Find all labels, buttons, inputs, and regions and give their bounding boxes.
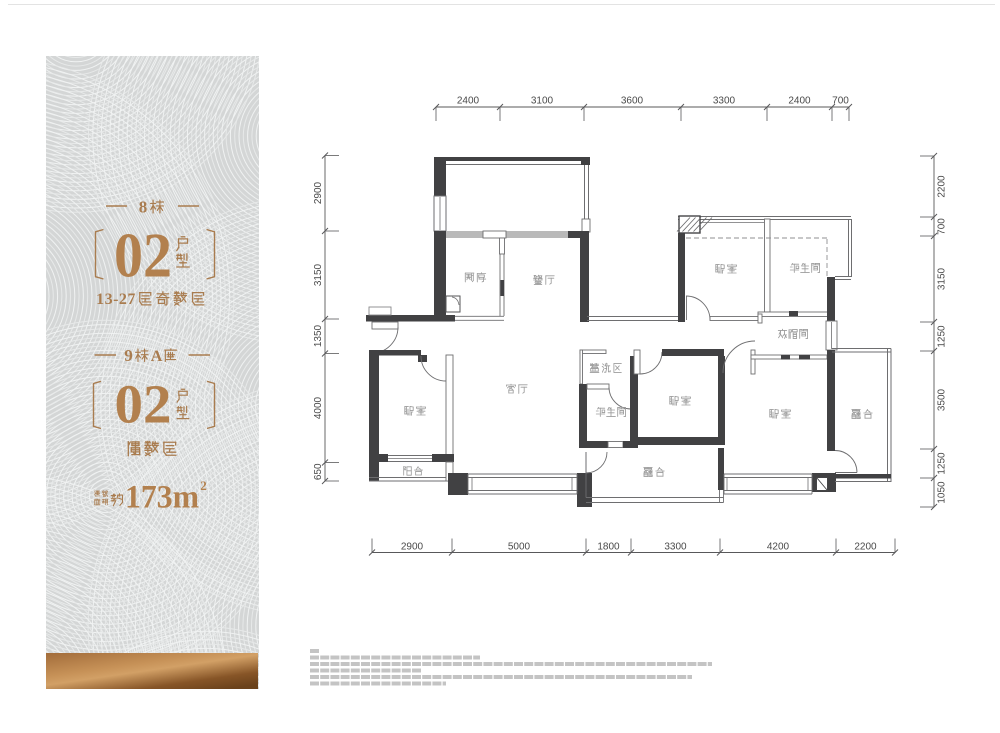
svg-text:2200: 2200 [937, 175, 948, 198]
svg-text:1800: 1800 [597, 542, 620, 553]
svg-text:02: 02 [114, 221, 172, 291]
svg-text:4000: 4000 [313, 396, 324, 419]
svg-text:5000: 5000 [508, 542, 531, 553]
svg-text:2900: 2900 [401, 542, 424, 553]
svg-text:3500: 3500 [937, 388, 948, 411]
svg-text:3600: 3600 [621, 96, 644, 107]
svg-text:700: 700 [832, 96, 849, 107]
svg-text:2: 2 [200, 478, 207, 493]
svg-text:700: 700 [937, 218, 948, 235]
svg-text:9: 9 [124, 346, 133, 365]
svg-text:2900: 2900 [313, 181, 324, 204]
svg-text:02: 02 [115, 374, 172, 435]
svg-text:3300: 3300 [664, 542, 687, 553]
svg-text:1250: 1250 [937, 325, 948, 348]
svg-text:2400: 2400 [457, 96, 480, 107]
svg-text:3150: 3150 [313, 263, 324, 286]
svg-text:173m: 173m [125, 480, 199, 516]
svg-text:3300: 3300 [713, 96, 736, 107]
svg-text:4200: 4200 [767, 542, 790, 553]
svg-text:3100: 3100 [531, 96, 554, 107]
svg-text:A: A [151, 348, 163, 365]
svg-text:2200: 2200 [854, 542, 877, 553]
svg-text:1350: 1350 [313, 324, 324, 347]
svg-text:1250: 1250 [937, 452, 948, 475]
svg-text:13-27: 13-27 [96, 291, 136, 308]
svg-text:3150: 3150 [937, 267, 948, 290]
svg-text:2400: 2400 [788, 96, 811, 107]
svg-text:650: 650 [313, 463, 324, 480]
svg-text:8: 8 [139, 198, 148, 217]
svg-text:1050: 1050 [937, 481, 948, 504]
